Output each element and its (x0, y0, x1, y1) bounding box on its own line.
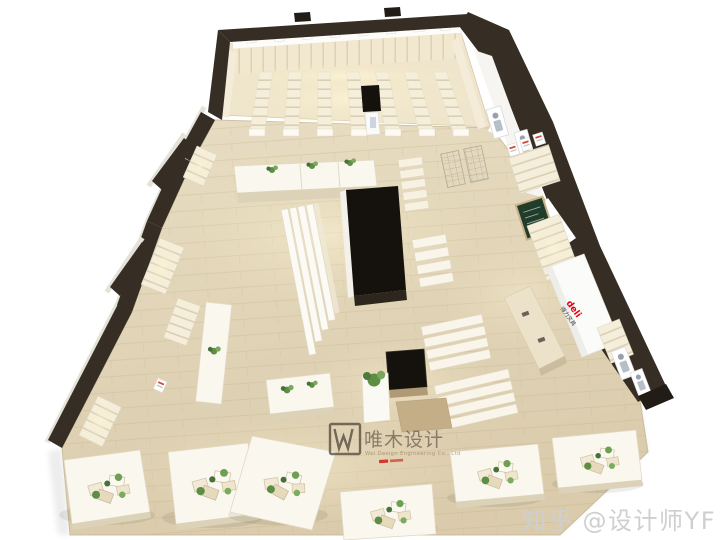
watermark-title: 唯木设计 (364, 429, 444, 451)
display-table (552, 430, 644, 494)
display-table (59, 450, 155, 530)
plant (377, 371, 385, 379)
black-column (361, 85, 381, 112)
display-table (447, 444, 545, 508)
plant (363, 372, 371, 380)
watermark-subtitle: Wei Design Engineering Co., Ltd (365, 451, 461, 457)
black-counter (340, 186, 407, 306)
black-cube-display (386, 349, 428, 398)
plant-pedestal (362, 371, 390, 423)
credit-watermark: 知乎 @设计师YF (522, 507, 716, 535)
wood-low-table (396, 398, 452, 432)
roof-notch (294, 12, 311, 22)
roof-notch (384, 7, 401, 17)
store-3d-render: deli 得力文具 (0, 0, 720, 540)
top-stockroom (208, 7, 490, 136)
center-table (266, 373, 335, 420)
store-render-image: deli 得力文具 (0, 0, 720, 540)
column-poster-stand (365, 112, 380, 135)
gondola-row (318, 72, 333, 134)
display-table (340, 484, 438, 540)
